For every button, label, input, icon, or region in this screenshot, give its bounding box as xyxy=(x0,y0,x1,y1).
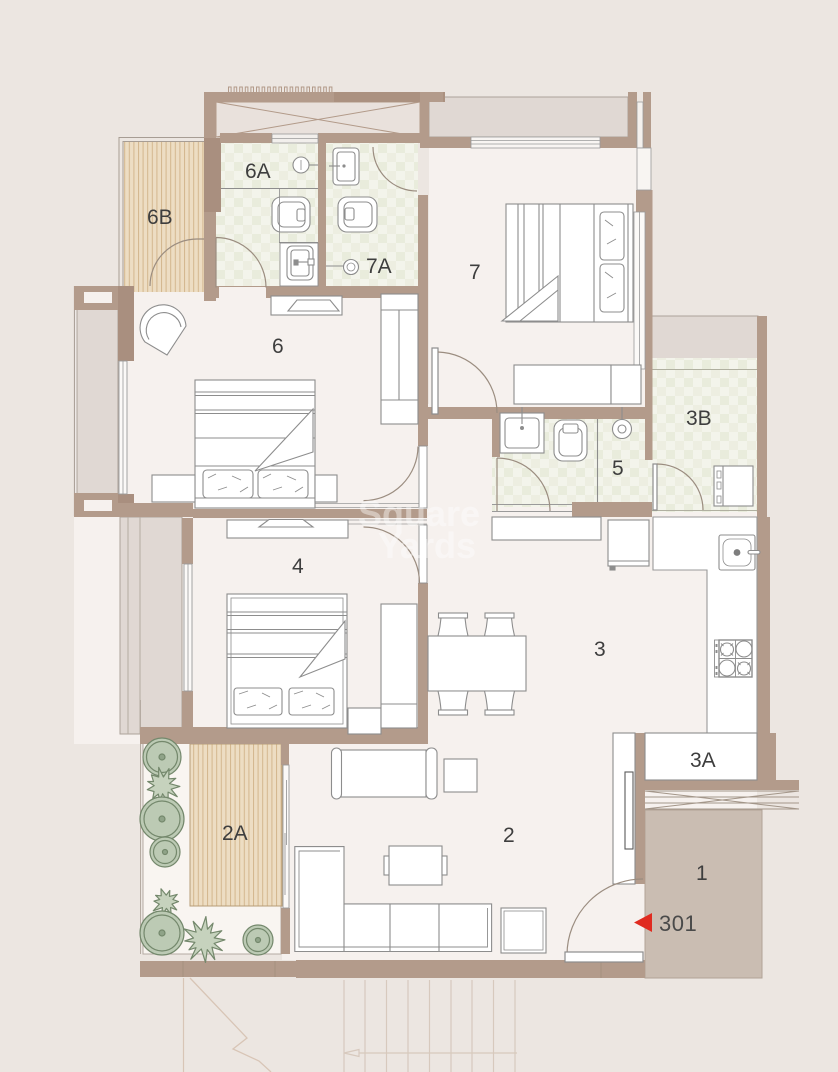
svg-text:2A: 2A xyxy=(222,822,248,845)
svg-text:5: 5 xyxy=(612,457,624,480)
svg-text:4: 4 xyxy=(292,555,304,578)
svg-text:6: 6 xyxy=(272,335,284,358)
svg-text:7: 7 xyxy=(469,261,481,284)
svg-text:6A: 6A xyxy=(245,160,271,183)
svg-text:301: 301 xyxy=(659,911,697,936)
svg-text:3: 3 xyxy=(594,638,606,661)
svg-text:6B: 6B xyxy=(147,206,173,229)
svg-text:3B: 3B xyxy=(686,407,712,430)
svg-text:2: 2 xyxy=(503,824,515,847)
svg-text:Yards: Yards xyxy=(378,525,476,566)
svg-text:7A: 7A xyxy=(366,255,392,278)
svg-text:1: 1 xyxy=(696,862,708,885)
svg-text:3A: 3A xyxy=(690,749,716,772)
